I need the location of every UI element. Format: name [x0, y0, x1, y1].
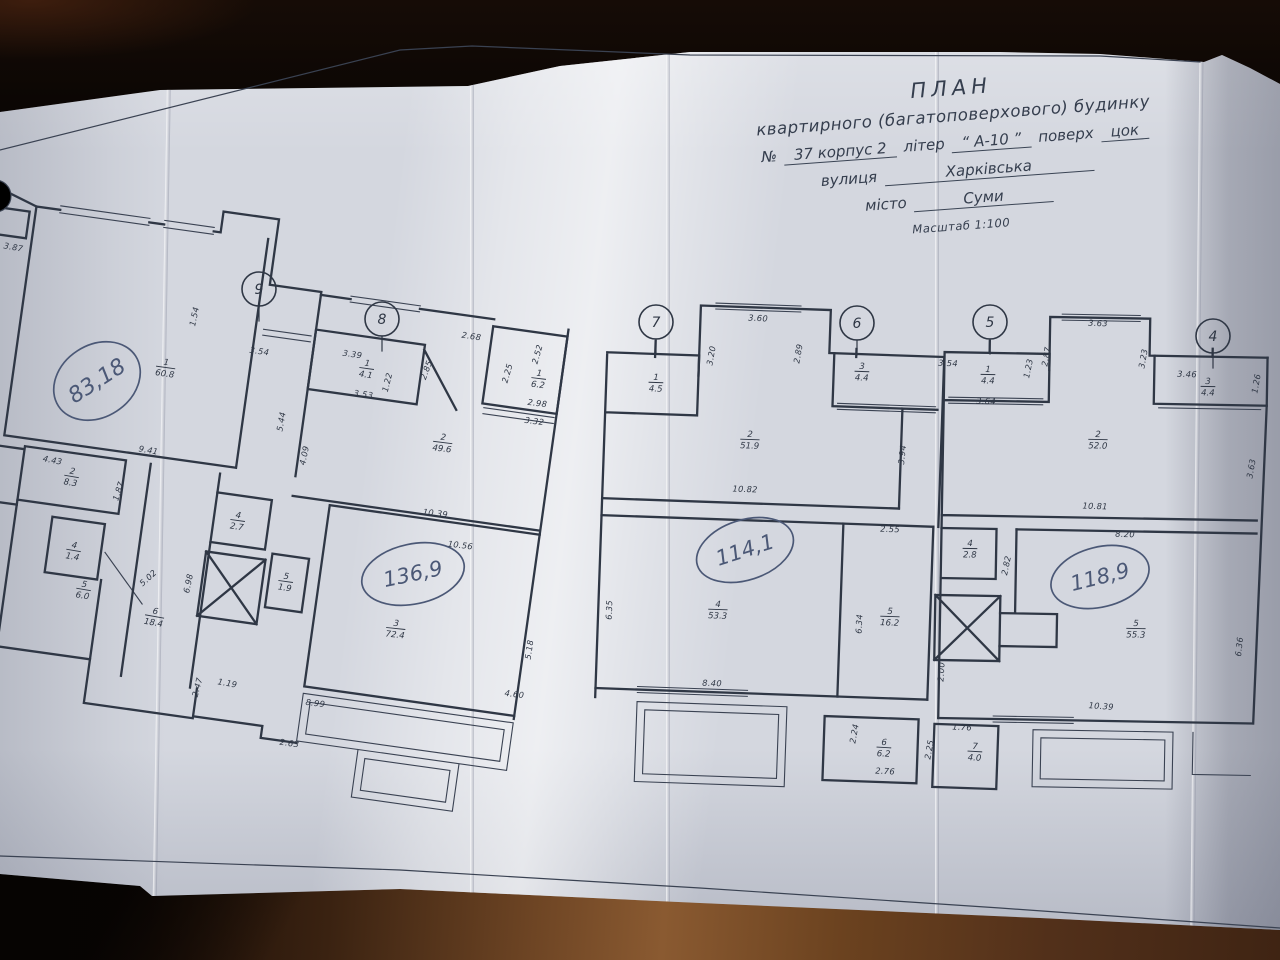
paper-fold-crease — [152, 0, 173, 960]
number-label: № — [761, 147, 778, 166]
title-block: ПЛАН квартирного (багатоповерхового) буд… — [733, 60, 1179, 249]
liter-value: “ А-10 ” — [951, 128, 1032, 153]
floor-label: поверх — [1038, 124, 1095, 146]
city-value: Суми — [913, 183, 1054, 212]
paper-fold-crease — [470, 0, 474, 960]
paper-fold-crease — [666, 0, 670, 960]
paper-fold-crease — [1190, 0, 1204, 960]
street-label: вулиця — [820, 168, 877, 190]
liter-label: літер — [903, 135, 945, 156]
photo-of-floor-plan: 987654160.828.341.456.0618.442.751.9372.… — [0, 0, 1280, 960]
floor-value: цок — [1100, 120, 1150, 142]
street-value: Харківська — [883, 152, 1094, 186]
number-value: 37 корпус 2 — [783, 138, 897, 165]
city-label: місто — [865, 194, 908, 215]
